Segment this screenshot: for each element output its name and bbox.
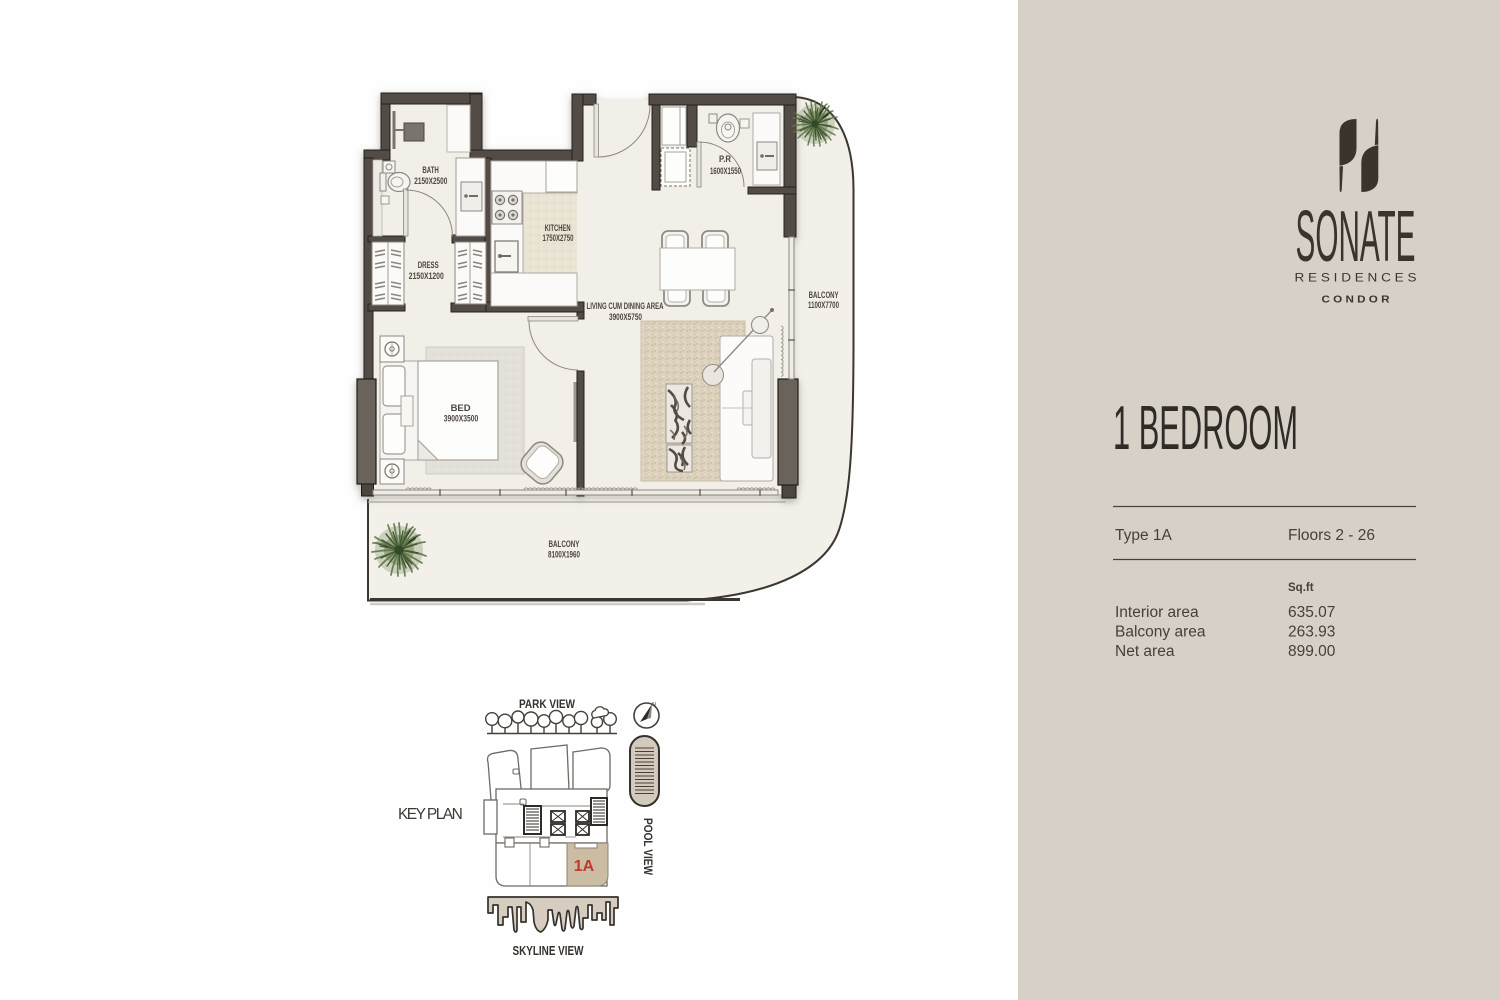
svg-text:LIVING CUM DINING AREA: LIVING CUM DINING AREA [587,301,664,312]
svg-text:Balcony area: Balcony area [1115,624,1206,641]
svg-text:1 BEDROOM: 1 BEDROOM [1113,394,1298,463]
svg-text:C O N D O R: C O N D O R [1322,294,1390,306]
svg-text:BED: BED [451,403,471,414]
svg-text:N: N [652,702,656,708]
svg-text:635.07: 635.07 [1288,604,1335,621]
svg-text:SKYLINE VIEW: SKYLINE VIEW [513,944,584,958]
svg-text:POOL VIEW: POOL VIEW [641,818,653,875]
svg-text:DRESS: DRESS [418,260,439,271]
svg-text:KEY PLAN: KEY PLAN [398,806,464,823]
svg-text:Net area: Net area [1115,643,1175,660]
svg-text:R E S I D E N C E S: R E S I D E N C E S [1295,271,1417,285]
svg-text:263.93: 263.93 [1288,624,1335,641]
svg-text:1100X7700: 1100X7700 [808,300,839,311]
svg-text:Floors 2 - 26: Floors 2 - 26 [1288,527,1375,544]
svg-text:2150X2500: 2150X2500 [414,176,447,187]
svg-text:899.00: 899.00 [1288,643,1336,660]
svg-text:2150X1200: 2150X1200 [409,271,444,282]
svg-text:Interior area: Interior area [1115,604,1199,621]
svg-text:1750X2750: 1750X2750 [543,233,574,244]
svg-text:BALCONY: BALCONY [549,539,580,550]
svg-text:8100X1960: 8100X1960 [548,550,580,561]
svg-text:1A: 1A [574,858,595,875]
svg-text:P.R: P.R [719,154,731,165]
svg-text:Type 1A: Type 1A [1115,527,1173,544]
svg-text:BATH: BATH [422,165,439,176]
svg-text:SONATE: SONATE [1296,197,1416,277]
svg-text:Sq.ft: Sq.ft [1288,582,1314,594]
svg-text:3900X5750: 3900X5750 [609,312,642,323]
svg-text:PARK VIEW: PARK VIEW [519,697,576,711]
svg-text:1600X1550: 1600X1550 [710,166,741,177]
svg-text:3900X3500: 3900X3500 [444,414,479,425]
